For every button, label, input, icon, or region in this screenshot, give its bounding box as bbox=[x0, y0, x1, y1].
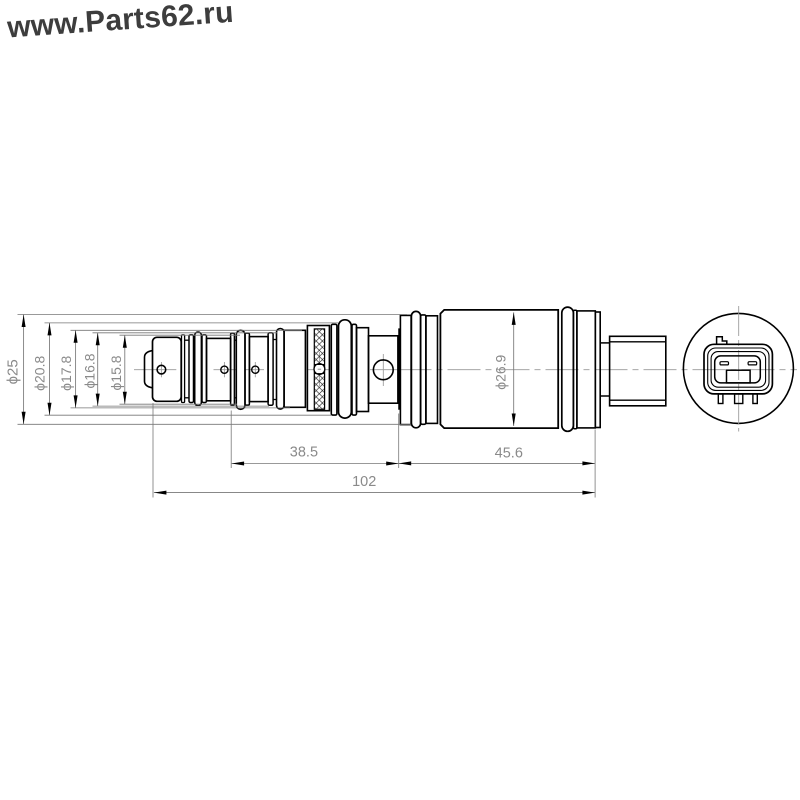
svg-text:38.5: 38.5 bbox=[290, 445, 318, 461]
svg-text:ϕ17.8: ϕ17.8 bbox=[58, 356, 74, 391]
svg-text:ϕ20.8: ϕ20.8 bbox=[32, 356, 48, 391]
svg-text:ϕ25: ϕ25 bbox=[4, 359, 21, 384]
svg-text:ϕ26.9: ϕ26.9 bbox=[493, 354, 509, 389]
svg-text:ϕ16.8: ϕ16.8 bbox=[82, 353, 98, 388]
svg-text:ϕ15.8: ϕ15.8 bbox=[108, 355, 124, 390]
svg-text:45.6: 45.6 bbox=[495, 446, 523, 462]
svg-text:www.Parts62.ru: www.Parts62.ru bbox=[5, 0, 235, 45]
svg-text:102: 102 bbox=[352, 474, 376, 490]
